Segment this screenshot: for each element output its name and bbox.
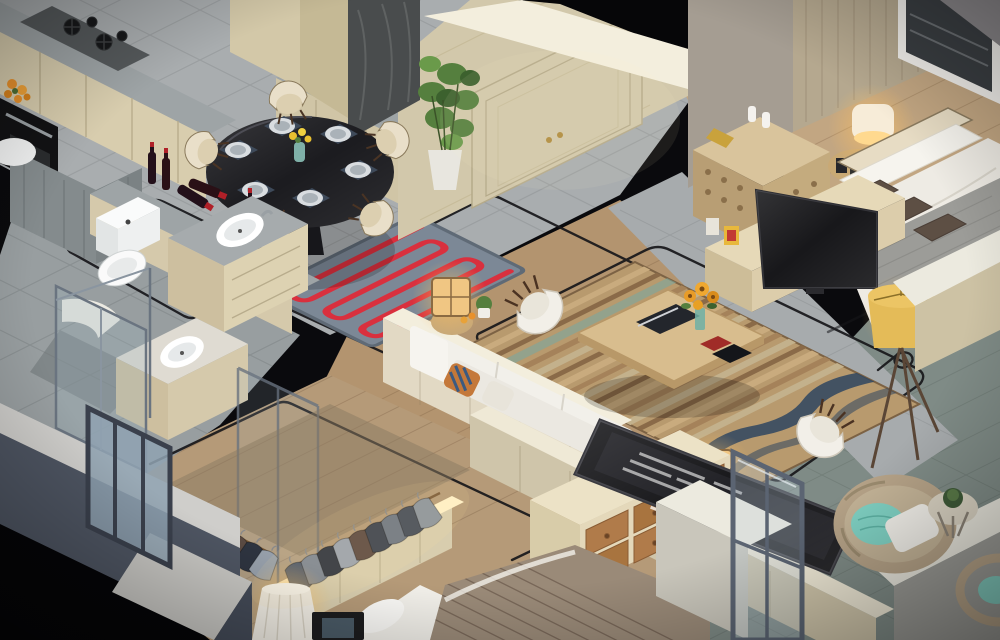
apartment-render (0, 0, 1000, 640)
isometric-apartment-scene (0, 0, 1000, 640)
vignette (0, 0, 1000, 640)
